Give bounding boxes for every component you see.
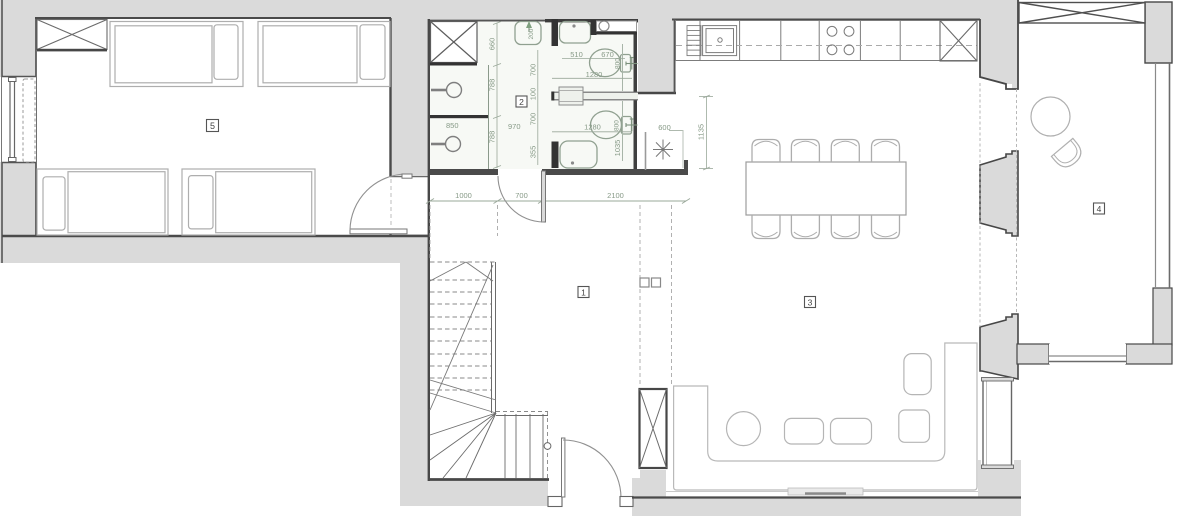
svg-text:1: 1	[581, 287, 586, 297]
svg-text:355: 355	[529, 146, 538, 159]
svg-text:3: 3	[808, 297, 813, 307]
svg-text:800: 800	[615, 58, 622, 69]
svg-text:600: 600	[658, 123, 671, 132]
svg-text:1280: 1280	[586, 70, 603, 79]
svg-text:1135: 1135	[697, 124, 706, 140]
svg-text:1280: 1280	[584, 123, 601, 132]
svg-text:2100: 2100	[607, 191, 624, 200]
svg-text:510: 510	[570, 50, 583, 59]
svg-text:660: 660	[488, 38, 497, 51]
svg-text:788: 788	[488, 131, 497, 144]
svg-text:5: 5	[210, 121, 215, 131]
svg-text:788: 788	[488, 79, 497, 92]
svg-text:200: 200	[528, 28, 535, 39]
svg-text:100: 100	[529, 88, 538, 101]
svg-text:700: 700	[529, 113, 538, 126]
svg-text:2: 2	[519, 97, 524, 107]
svg-text:700: 700	[529, 64, 538, 77]
svg-text:700: 700	[515, 191, 528, 200]
svg-text:4: 4	[1097, 204, 1102, 214]
svg-text:800: 800	[614, 120, 621, 131]
svg-text:970: 970	[508, 122, 521, 131]
svg-text:1000: 1000	[455, 191, 472, 200]
svg-text:850: 850	[446, 121, 459, 130]
svg-text:670: 670	[601, 50, 614, 59]
svg-text:1035: 1035	[613, 140, 622, 157]
